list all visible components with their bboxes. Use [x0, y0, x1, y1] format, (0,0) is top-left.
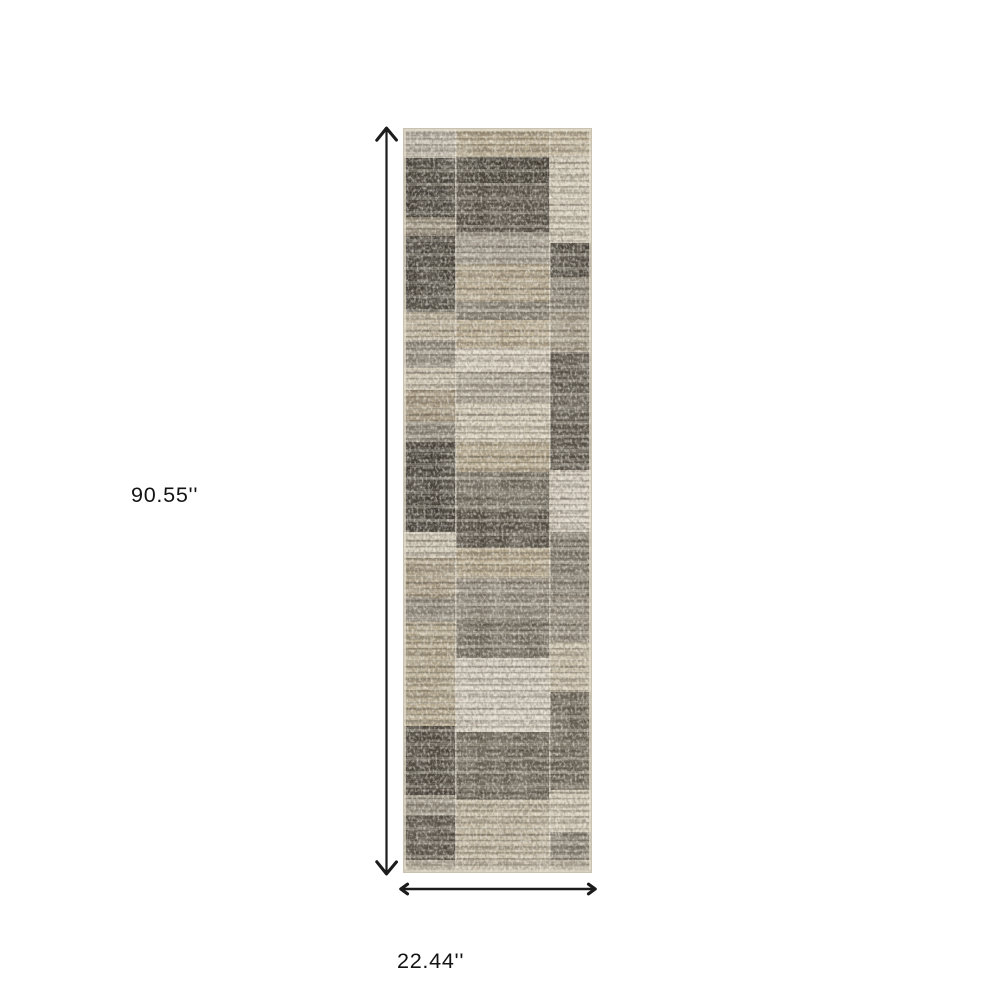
svg-text:90.55'': 90.55''	[131, 482, 198, 507]
svg-text:22.44'': 22.44''	[397, 948, 464, 973]
